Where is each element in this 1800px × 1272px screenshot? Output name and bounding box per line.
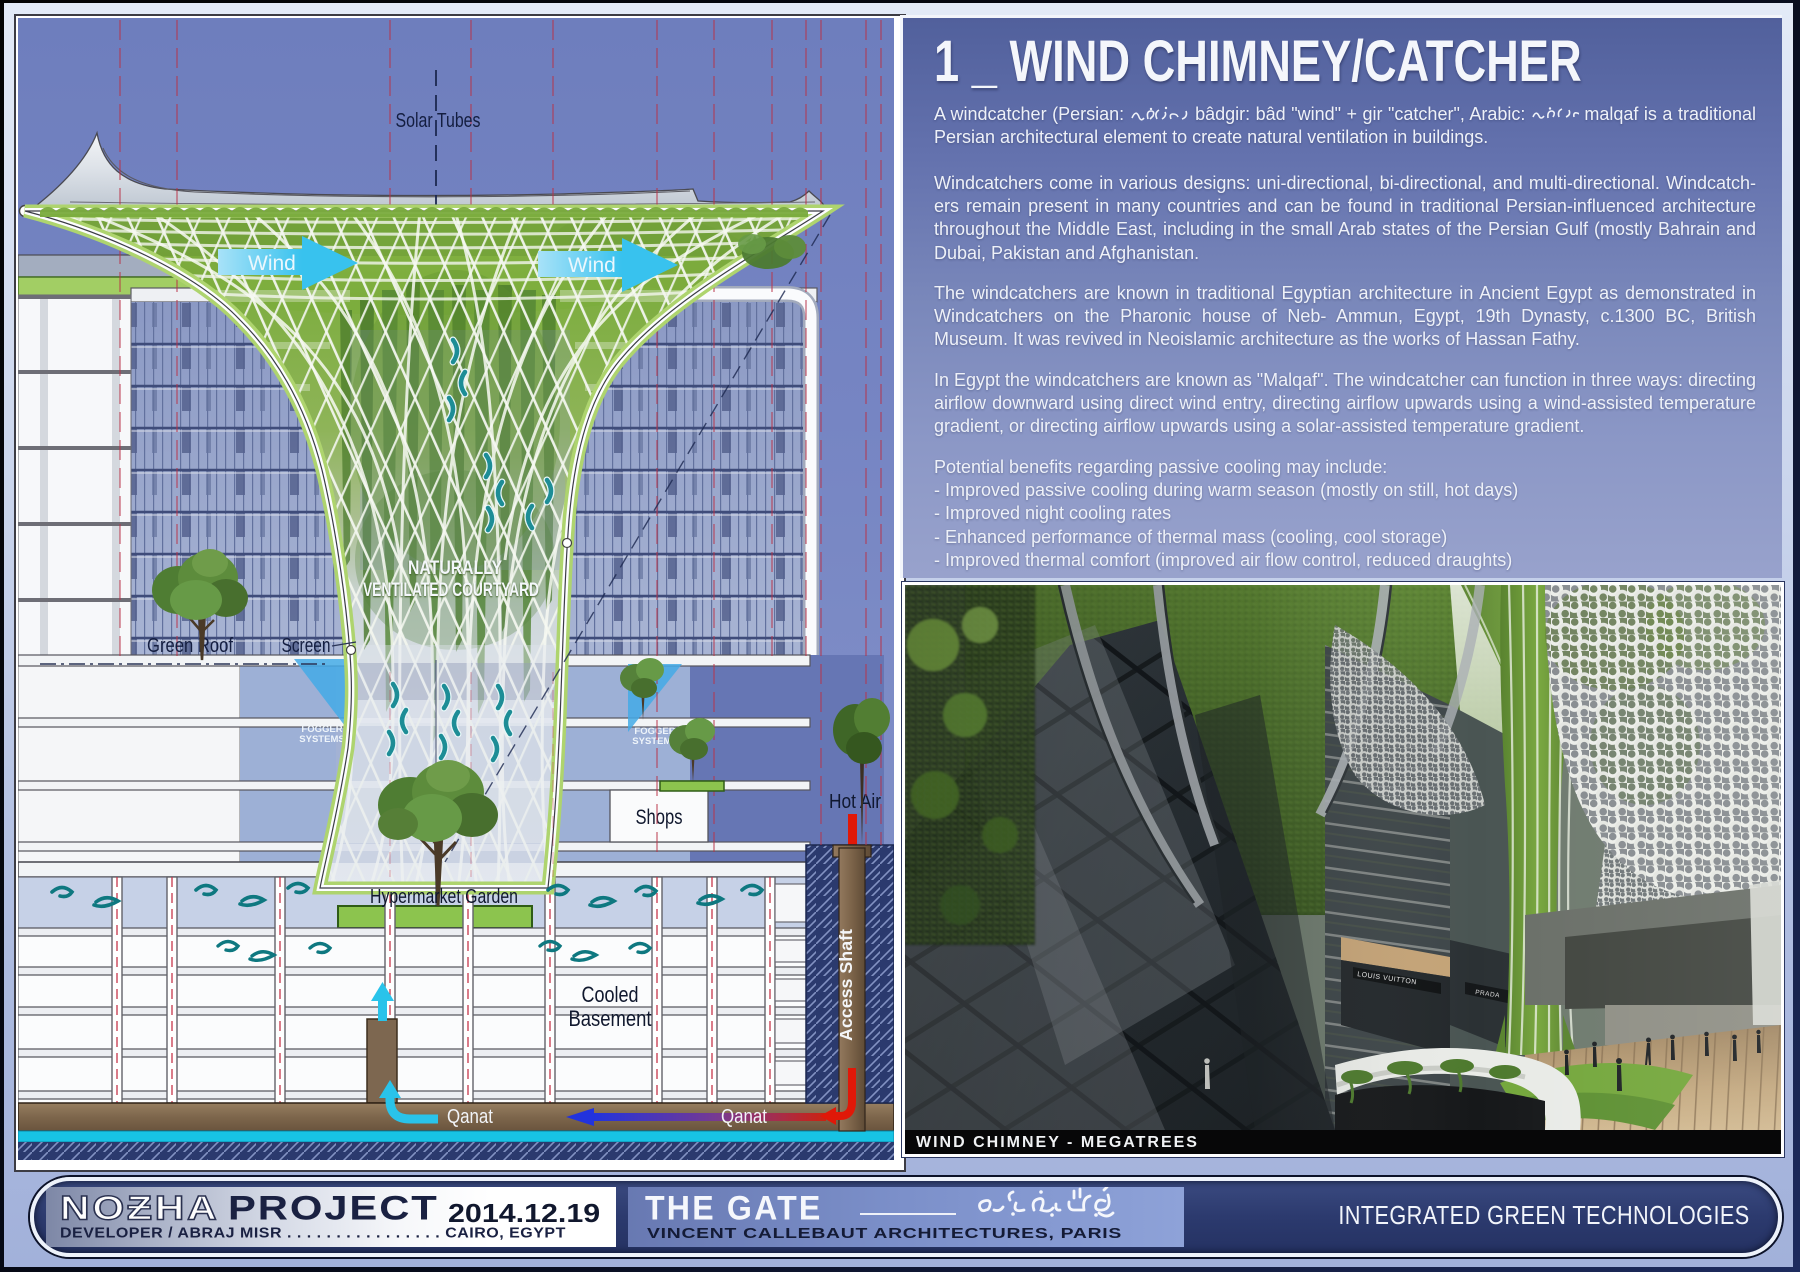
svg-text:Screen: Screen [282, 635, 331, 657]
svg-text:Cooled: Cooled [582, 982, 639, 1007]
svg-text:Green Roof: Green Roof [147, 635, 233, 657]
svg-text:NATURALLY: NATURALLY [408, 558, 502, 579]
svg-text:WIND CHIMNEY - MEGATREES: WIND CHIMNEY - MEGATREES [916, 1134, 1199, 1151]
svg-text:Hot Air: Hot Air [829, 791, 881, 813]
svg-text:Basement: Basement [569, 1006, 652, 1031]
svg-text:Wind: Wind [568, 254, 616, 277]
svg-text:Hypermarket Garden: Hypermarket Garden [370, 886, 518, 908]
svg-text:Shops: Shops [636, 806, 683, 829]
svg-text:Access Shaft: Access Shaft [836, 929, 856, 1041]
svg-text:Solar Tubes: Solar Tubes [396, 109, 481, 132]
svg-text:SYSTEMS: SYSTEMS [299, 734, 344, 745]
svg-text:Qanat: Qanat [447, 1106, 493, 1128]
svg-text:VENTILATED COURTYARD: VENTILATED COURTYARD [363, 580, 539, 601]
svg-text:Qanat: Qanat [721, 1106, 767, 1128]
svg-text:Wind: Wind [248, 252, 296, 275]
